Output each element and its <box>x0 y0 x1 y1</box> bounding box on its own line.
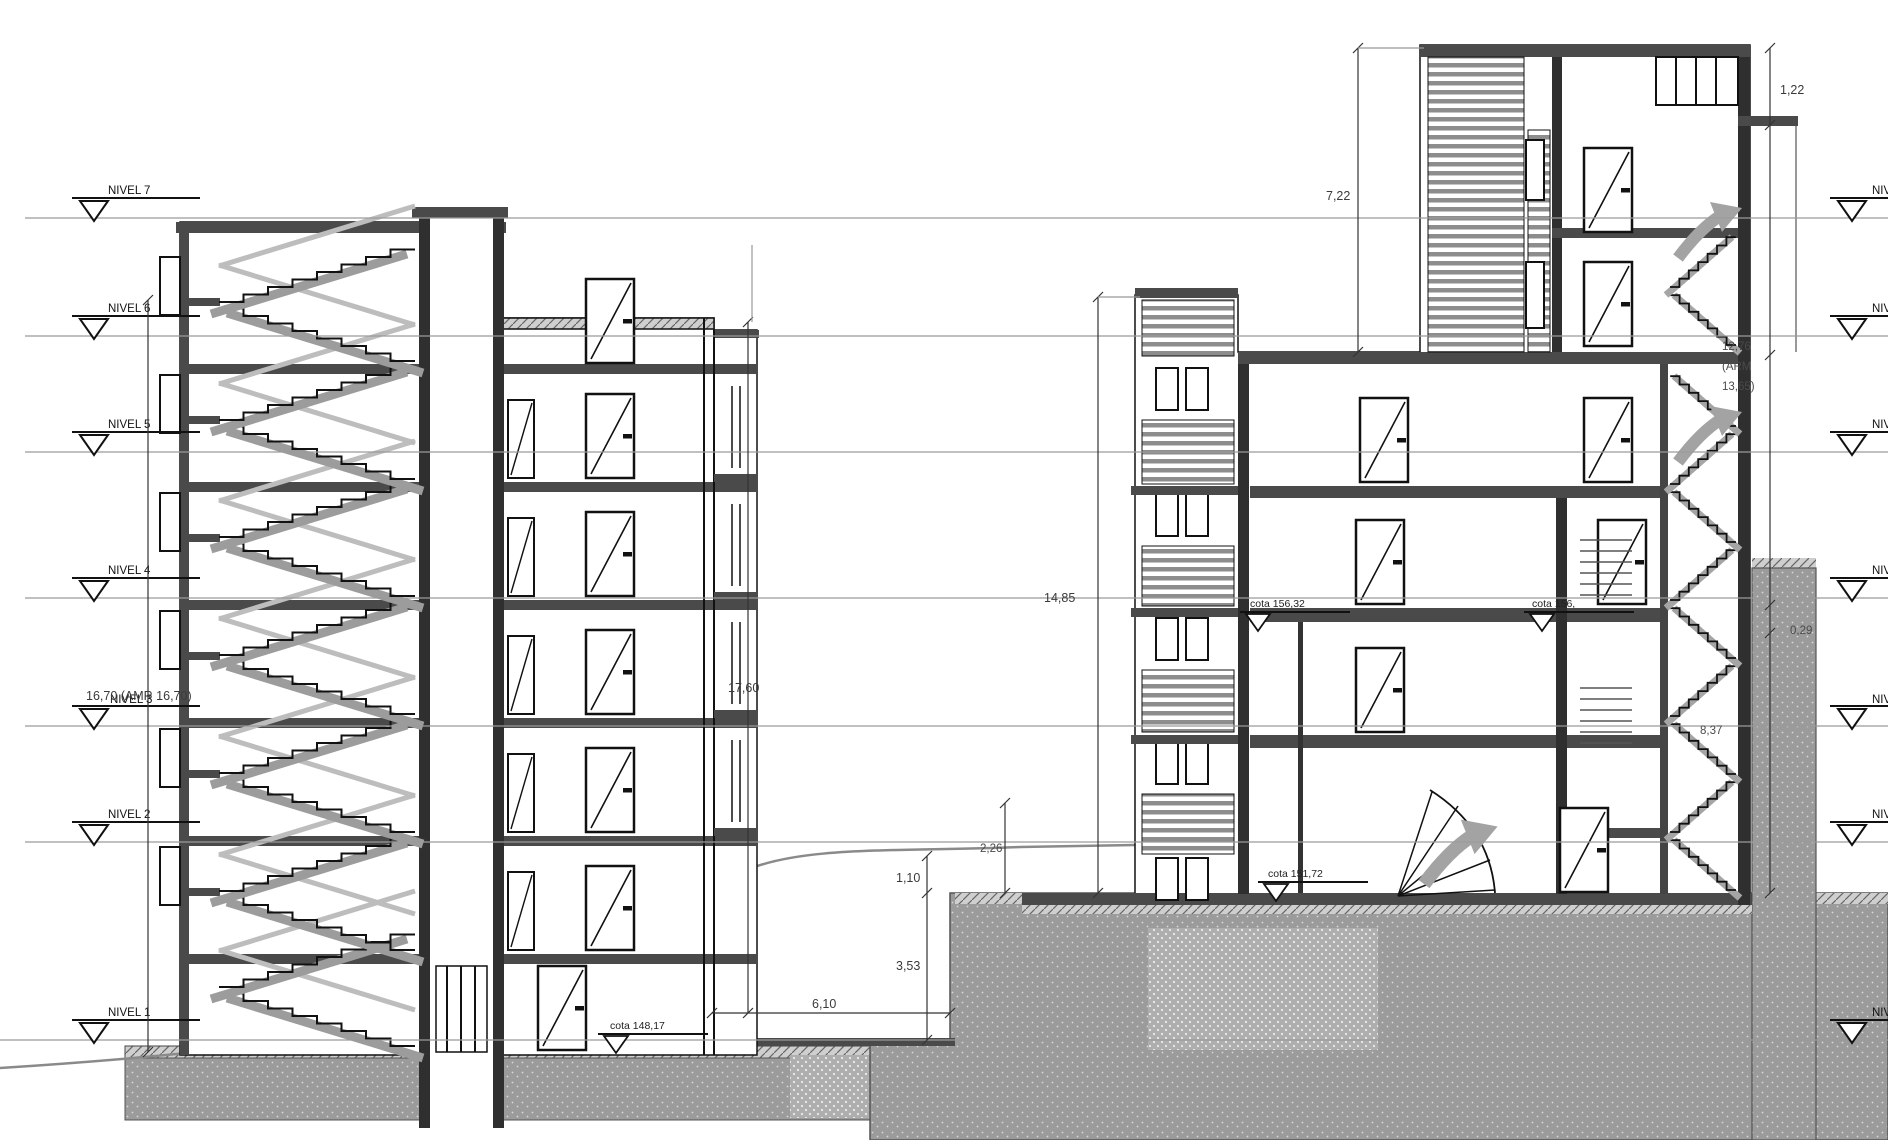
cota-label: cota 151,72 <box>1268 868 1323 880</box>
dim-arm-1: 12,76 <box>1722 341 1751 353</box>
left-facade-windows <box>160 257 180 905</box>
dim-gap-v1: 1,10 <box>896 871 920 885</box>
floor-slab <box>1250 608 1668 622</box>
door <box>586 748 634 832</box>
door <box>1356 520 1404 604</box>
base-slab <box>1022 893 1752 905</box>
dim-tower: 7,22 <box>1326 189 1350 203</box>
dim-arm-3: 13,65) <box>1722 381 1755 393</box>
cota-label: cota 156,32 <box>1250 598 1305 610</box>
window <box>160 493 180 551</box>
interior-wall <box>1238 364 1249 894</box>
dim-step: 0,29 <box>1790 625 1812 637</box>
section-drawing: NIVEL 7 NIVEL 6 NIVEL 5 NIVEL 4 NIVEL 3 … <box>0 0 1888 1140</box>
dim-arm-2: (ARM <box>1722 361 1751 373</box>
main-roof-slab <box>1238 352 1750 364</box>
level-label: NIVEL 1 <box>108 1007 150 1019</box>
door <box>586 512 634 596</box>
section-drawing-canvas: NIVEL 7 NIVEL 6 NIVEL 5 NIVEL 4 NIVEL 3 … <box>0 0 1888 1140</box>
window <box>160 257 180 315</box>
strip-slab <box>1131 486 1238 495</box>
right-exterior-wall <box>1738 45 1750 905</box>
interior-wall-thin <box>1298 622 1303 893</box>
strip-parapet-slab <box>1135 288 1238 298</box>
level-label: NIVEL 5 <box>108 419 150 431</box>
ground-hatch-band-column <box>1752 558 1816 568</box>
door <box>586 279 634 363</box>
dim-right-block: 14,85 <box>1044 591 1075 605</box>
window <box>160 611 180 669</box>
ground-column-right <box>1752 568 1816 1140</box>
balcony-slab <box>714 474 757 482</box>
level-label: NIVEL 7 <box>1872 185 1888 197</box>
hatched-panel <box>1142 794 1234 854</box>
door <box>1560 808 1608 892</box>
level-label: NIVEL 7 <box>108 185 150 197</box>
stair-bulkhead-slab <box>1738 116 1798 126</box>
door <box>508 518 534 596</box>
balcony-slab <box>714 592 757 600</box>
dim-gap-v3: 2,26 <box>980 843 1002 855</box>
level-label: NIVEL 2 <box>1872 809 1888 821</box>
cota-label: cota 156, <box>1532 598 1575 610</box>
floor-slab <box>1250 735 1662 748</box>
hatched-panel <box>1142 670 1234 732</box>
dim-gap-h: 6,10 <box>812 997 836 1011</box>
level-label: NIVEL 2 <box>108 809 150 821</box>
door <box>586 630 634 714</box>
strip-slab <box>1131 735 1238 744</box>
left-building-section <box>160 206 759 1128</box>
level-label: NIVEL 4 <box>1872 565 1888 577</box>
base-slab-hatch <box>1022 905 1752 914</box>
elevator-overrun-slab <box>412 207 508 218</box>
level-label: NIVEL 3 <box>1872 694 1888 706</box>
floor-slab <box>1250 486 1662 498</box>
tower-interior-wall <box>1552 57 1562 352</box>
door <box>586 394 634 478</box>
entry-door <box>538 966 586 1050</box>
door <box>1584 398 1632 482</box>
door <box>508 400 534 478</box>
tower-window <box>1526 140 1544 200</box>
door <box>508 872 534 950</box>
elevator-shaft <box>419 218 504 1128</box>
right-building-section <box>1022 45 1798 914</box>
door <box>1584 148 1632 232</box>
elevator-shaft-wall <box>493 218 504 1128</box>
dim-gap-v2: 3,53 <box>896 959 920 973</box>
level-label: NIVEL 1 <box>1872 1007 1888 1019</box>
dim-left-total: 16,70 (AMR 16,70) <box>86 689 192 703</box>
roof-slab-strip <box>714 330 759 338</box>
door <box>1584 262 1632 346</box>
stair-wall <box>1660 364 1668 894</box>
tower-roof-slab <box>1420 45 1750 57</box>
ground-fill-light-right <box>1148 928 1378 1050</box>
balcony-slab <box>714 710 757 718</box>
elevator-shaft-wall <box>419 218 430 1128</box>
balcony-slab <box>714 828 757 836</box>
hatched-panel <box>1142 546 1234 606</box>
dim-left-height: 17,60 <box>728 681 759 695</box>
window <box>160 375 180 433</box>
door <box>508 636 534 714</box>
cota-label: cota 148,17 <box>610 1020 665 1032</box>
window <box>160 729 180 787</box>
tower-hatched-wall <box>1428 57 1524 352</box>
ground-platform-right <box>870 893 1888 1140</box>
dim-slope: 8,37 <box>1700 725 1722 737</box>
hatched-panel <box>1142 300 1234 356</box>
door <box>1356 648 1404 732</box>
left-exterior-wall <box>180 222 189 1055</box>
level-label: NIVEL 4 <box>108 565 151 577</box>
dim-parapet: 1,22 <box>1780 83 1804 97</box>
level-label: NIVEL 5 <box>1872 419 1888 431</box>
level-label: NIVEL 6 <box>1872 303 1888 315</box>
door <box>508 754 534 832</box>
window <box>160 847 180 905</box>
strip-slab <box>1131 608 1238 617</box>
door <box>586 866 634 950</box>
tower-window <box>1526 262 1544 328</box>
door <box>1360 398 1408 482</box>
